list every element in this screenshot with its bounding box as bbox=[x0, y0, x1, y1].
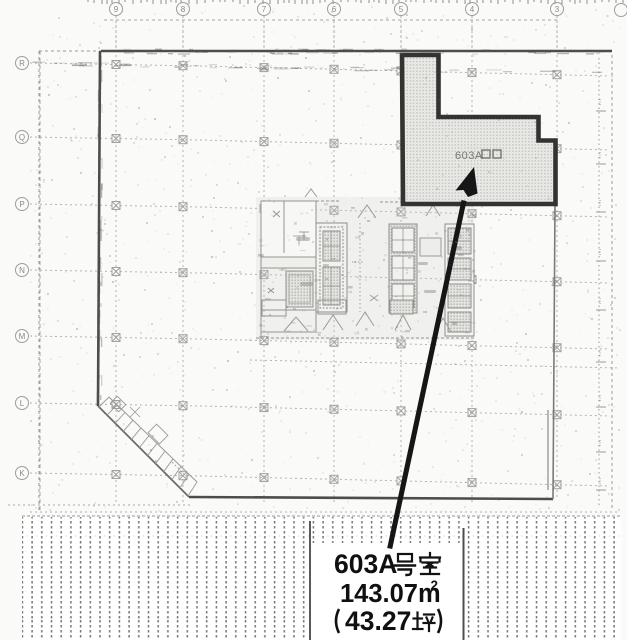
svg-text:R: R bbox=[19, 59, 25, 68]
svg-text:603A: 603A bbox=[455, 150, 483, 162]
svg-text:603A: 603A bbox=[334, 549, 397, 579]
svg-text:N: N bbox=[19, 266, 25, 275]
svg-text:143.07m: 143.07m bbox=[340, 580, 441, 608]
svg-text:7: 7 bbox=[262, 5, 267, 14]
svg-text:3: 3 bbox=[555, 5, 560, 14]
svg-text:4: 4 bbox=[470, 5, 475, 14]
svg-text:P: P bbox=[19, 200, 24, 209]
svg-text:43.27: 43.27 bbox=[345, 606, 411, 636]
svg-text:5: 5 bbox=[399, 5, 404, 14]
svg-text:2: 2 bbox=[431, 578, 439, 593]
svg-text:9: 9 bbox=[114, 5, 119, 14]
svg-text:M: M bbox=[19, 332, 26, 341]
svg-text:Q: Q bbox=[19, 133, 25, 142]
svg-text:K: K bbox=[19, 469, 25, 478]
svg-text:L: L bbox=[20, 399, 25, 408]
svg-text:8: 8 bbox=[181, 5, 186, 14]
